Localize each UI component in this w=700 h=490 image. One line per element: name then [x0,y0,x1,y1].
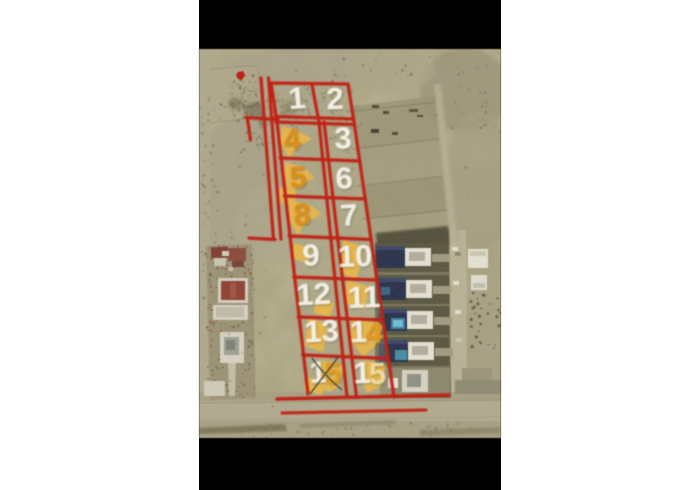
svg-text:12: 12 [295,276,331,313]
svg-text:7: 7 [339,197,359,233]
svg-text:5: 5 [368,356,386,392]
svg-text:11: 11 [347,279,381,315]
svg-text:13: 13 [303,313,339,350]
svg-text:10: 10 [337,238,373,274]
svg-text:5: 5 [288,159,307,195]
svg-text:4: 4 [365,315,384,351]
svg-text:6: 6 [335,160,353,196]
svg-text:9: 9 [301,237,320,273]
svg-text:8: 8 [292,196,311,232]
svg-text:2: 2 [326,81,344,117]
svg-text:1: 1 [287,80,307,116]
svg-text:4: 4 [282,121,302,157]
svg-text:3: 3 [334,120,352,156]
